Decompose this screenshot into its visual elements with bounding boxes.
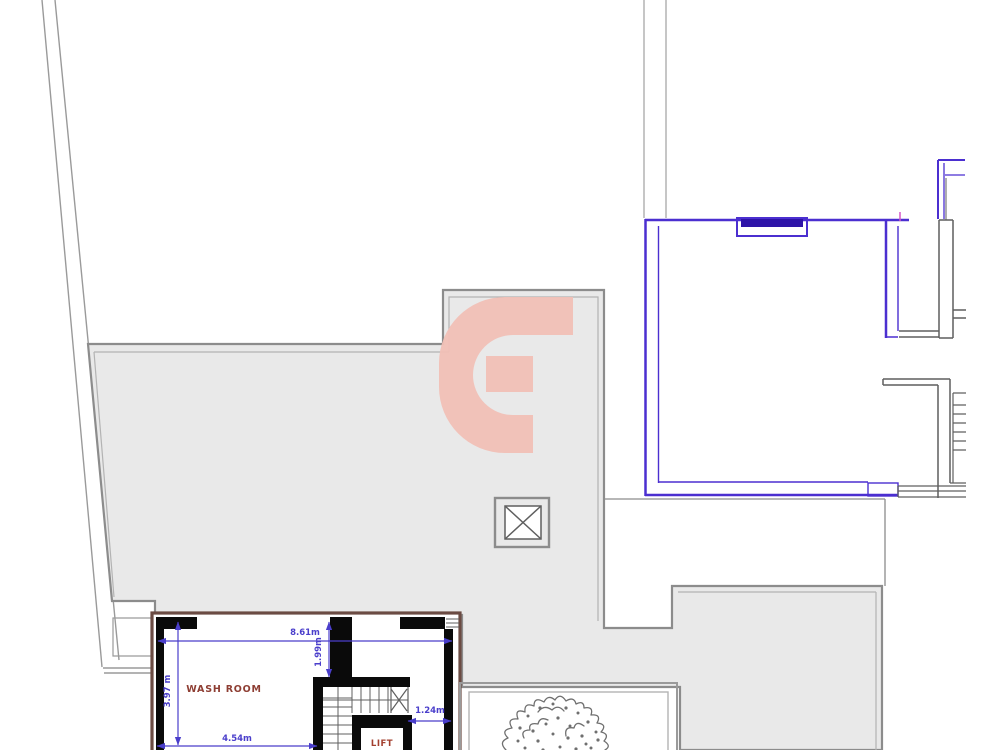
dim-label-lift-gap: 1.24m [415,706,445,716]
room-walls-blue [644,0,909,496]
planter [460,683,677,750]
floor-plan-page: LIFT WASH ROOM 8.61m 1.99m 3.97 m 4.54m … [0,0,1000,750]
floor-plan-canvas: LIFT WASH ROOM 8.61m 1.99m 3.97 m 4.54m … [0,0,1000,750]
adjacent-structure-upper [899,160,966,338]
dim-label-bottom-width: 4.54m [222,734,252,744]
dim-label-opening-height: 1.99m [314,637,324,667]
dim-label-left-height: 3.97 m [163,674,173,707]
adjacent-structure-lower [883,379,966,498]
tree-icon [502,696,608,750]
dim-label-top-width: 8.61m [290,628,320,638]
lift-label: LIFT [371,739,393,749]
lift-shaft: LIFT [352,715,412,750]
washroom-label: WASH ROOM [186,684,262,695]
window-icon [737,218,807,236]
